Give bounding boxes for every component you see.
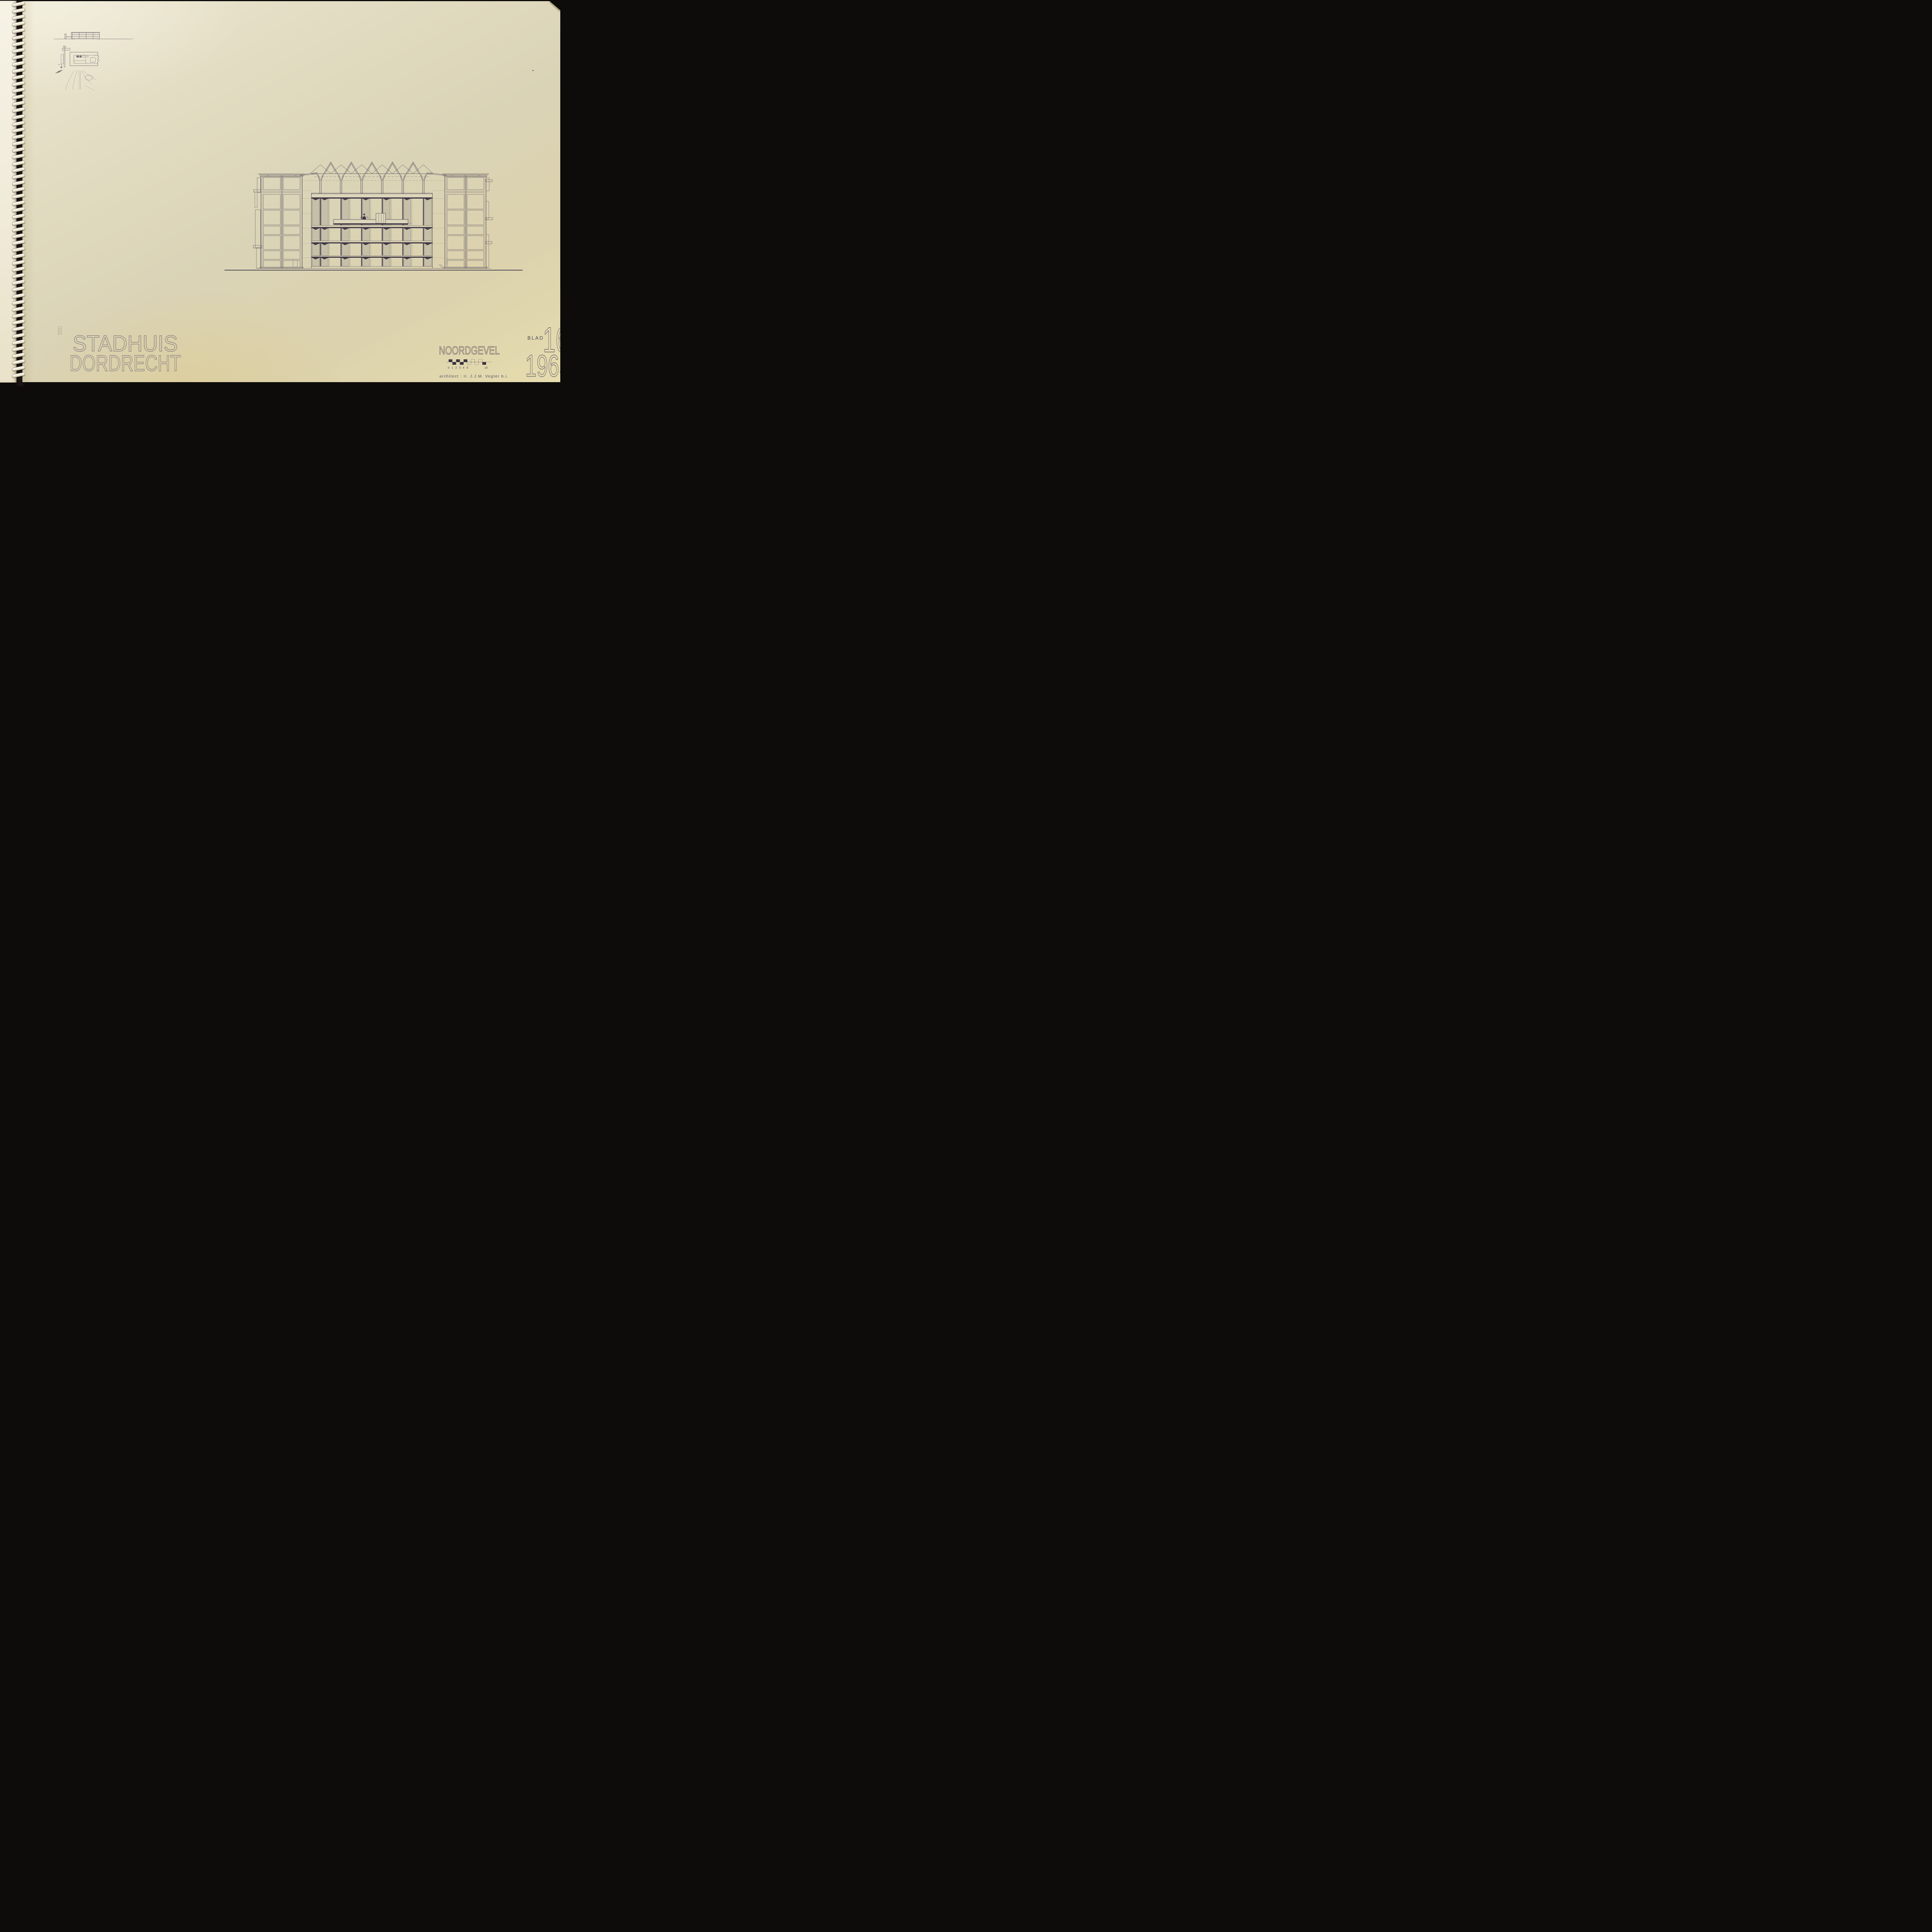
page-corner-fold xyxy=(549,1,560,11)
coil-loop xyxy=(12,253,27,258)
coil-wire xyxy=(12,153,26,159)
coil-loop xyxy=(12,320,27,324)
coil-loop xyxy=(12,286,27,291)
coil-wire xyxy=(12,94,26,100)
coil-wire xyxy=(12,140,26,146)
coil-wire xyxy=(12,346,26,352)
coil-wire xyxy=(12,306,26,312)
coil-wire xyxy=(12,213,26,219)
coil-loop xyxy=(12,134,27,139)
coil-wire xyxy=(12,134,26,139)
sheet-label: BLAD xyxy=(527,335,544,341)
scale-bar-labels: 0 1 2 3 4 5 10 xyxy=(448,366,488,369)
coil-loop xyxy=(12,154,27,158)
paper-speck xyxy=(532,70,534,71)
sheet-number-block: BLAD 16 1965 xyxy=(521,323,564,381)
scale-tick: 1 xyxy=(452,366,453,369)
coil-wire xyxy=(12,54,26,60)
coil-wire xyxy=(12,100,26,106)
coil-loop xyxy=(12,101,27,105)
coil-loop xyxy=(12,15,27,19)
coil-wire xyxy=(12,187,26,192)
coil-loop xyxy=(12,8,27,13)
scale-bar: 0 1 2 3 4 5 10 xyxy=(446,359,492,369)
coil-wire xyxy=(12,200,26,206)
coil-loop xyxy=(12,81,27,86)
coil-loop xyxy=(12,346,27,351)
coil-loop xyxy=(12,306,27,311)
coil-wire xyxy=(12,326,26,332)
coil-wire xyxy=(12,260,26,265)
scale-tick: 10 xyxy=(485,366,488,369)
coil-wire xyxy=(12,147,26,153)
coil-loop xyxy=(12,340,27,344)
coil-wire xyxy=(12,352,26,358)
coil-wire xyxy=(12,160,26,166)
coil-wire xyxy=(12,8,26,14)
project-title-line2: DORDRECHT xyxy=(70,351,181,376)
coil-loop xyxy=(12,372,27,377)
coil-loop xyxy=(12,214,27,218)
coil-wire xyxy=(12,359,26,365)
coil-wire xyxy=(12,48,26,53)
coil-loop xyxy=(12,61,27,66)
coil-loop xyxy=(12,273,27,278)
coil-wire xyxy=(12,299,26,305)
coil-wire xyxy=(12,21,26,27)
coil-wire xyxy=(12,366,26,371)
coil-wire xyxy=(12,114,26,119)
coil-loop xyxy=(12,240,27,245)
coil-loop xyxy=(12,121,27,126)
coil-wire xyxy=(12,127,26,133)
north-elevation-drawing xyxy=(218,156,527,274)
coil-loop xyxy=(12,313,27,318)
coil-loop xyxy=(12,94,27,99)
coil-loop xyxy=(12,141,27,145)
coil-loop xyxy=(12,107,27,112)
coil-wire xyxy=(12,240,26,245)
coil-wire xyxy=(12,74,26,80)
scale-tick: 3 xyxy=(459,366,461,369)
coil-loop xyxy=(12,227,27,231)
coil-loop xyxy=(12,326,27,331)
scanned-album-page: STADHUIS DORDRECHT NOORDGEVEL xyxy=(0,0,564,386)
coil-wire xyxy=(12,180,26,186)
coil-wire xyxy=(12,220,26,226)
coil-loop xyxy=(12,194,27,198)
coil-wire xyxy=(12,34,26,40)
coil-wire xyxy=(12,206,26,212)
coil-wire xyxy=(12,67,26,73)
coil-wire xyxy=(12,81,26,87)
coil-loop xyxy=(12,21,27,26)
coil-loop xyxy=(12,75,27,79)
scale-tick: 4 xyxy=(463,366,464,369)
coil-wire xyxy=(12,173,26,179)
coil-loop xyxy=(12,28,27,33)
coil-loop xyxy=(12,180,27,185)
coil-wire xyxy=(12,286,26,292)
coil-wire xyxy=(12,253,26,259)
coil-wire xyxy=(12,193,26,199)
scale-tick: 0 xyxy=(448,366,449,369)
coil-wire xyxy=(12,266,26,272)
coil-wire xyxy=(12,273,26,279)
project-title: STADHUIS DORDRECHT xyxy=(68,335,184,378)
coil-loop xyxy=(12,293,27,298)
coil-wire xyxy=(12,41,26,47)
coil-loop xyxy=(12,48,27,53)
coil-wire xyxy=(12,319,26,325)
collection-stamp xyxy=(58,327,62,335)
spiral-binding xyxy=(0,0,35,386)
coil-loop xyxy=(12,353,27,357)
coil-wire xyxy=(12,313,26,318)
coil-wire xyxy=(12,14,26,20)
coil-loop xyxy=(12,359,27,364)
coil-loop xyxy=(12,267,27,271)
coil-loop xyxy=(12,68,27,73)
coil-loop xyxy=(12,366,27,371)
coil-wire xyxy=(12,246,26,252)
coil-wire xyxy=(12,1,26,7)
coil-loop xyxy=(12,114,27,119)
coil-wire xyxy=(12,372,26,378)
coil-loop xyxy=(12,54,27,59)
coil-wire xyxy=(12,339,26,345)
coil-wire xyxy=(12,107,26,113)
coil-loop xyxy=(12,2,27,6)
coil-wire xyxy=(12,332,26,338)
coil-loop xyxy=(12,333,27,338)
drawing-title: NOORDGEVEL xyxy=(439,344,500,357)
coil-loop xyxy=(12,201,27,205)
architect-credit: architect : Ir. J.J.M. Vegter b.i. xyxy=(439,374,509,379)
coil-loop xyxy=(12,88,27,92)
coil-wire xyxy=(12,27,26,33)
coil-loop xyxy=(12,128,27,132)
coil-wire xyxy=(12,61,26,66)
coil-wire xyxy=(12,233,26,239)
coil-wire xyxy=(12,279,26,285)
coil-loop xyxy=(12,247,27,252)
coil-loop xyxy=(12,280,27,284)
coil-loop xyxy=(12,207,27,212)
coil-wire xyxy=(12,167,26,173)
site-key-sketches xyxy=(52,27,137,119)
coil-loop xyxy=(12,161,27,165)
coil-loop xyxy=(12,147,27,152)
coil-loop xyxy=(12,233,27,238)
coil-wire xyxy=(12,226,26,232)
coil-wire xyxy=(12,87,26,93)
drawing-sheet: STADHUIS DORDRECHT NOORDGEVEL xyxy=(22,1,560,382)
coil-wire xyxy=(12,293,26,298)
coil-loop xyxy=(12,174,27,179)
coil-loop xyxy=(12,220,27,225)
scale-tick: 2 xyxy=(455,366,457,369)
coil-loop xyxy=(12,35,27,39)
coil-wire xyxy=(12,121,26,126)
sheet-year: 1965 xyxy=(525,349,564,383)
coil-loop xyxy=(12,300,27,304)
coil-loop xyxy=(12,167,27,172)
coil-loop xyxy=(12,41,27,46)
coil-loop xyxy=(12,260,27,265)
scale-tick: 5 xyxy=(466,366,468,369)
coil-loop xyxy=(12,187,27,192)
